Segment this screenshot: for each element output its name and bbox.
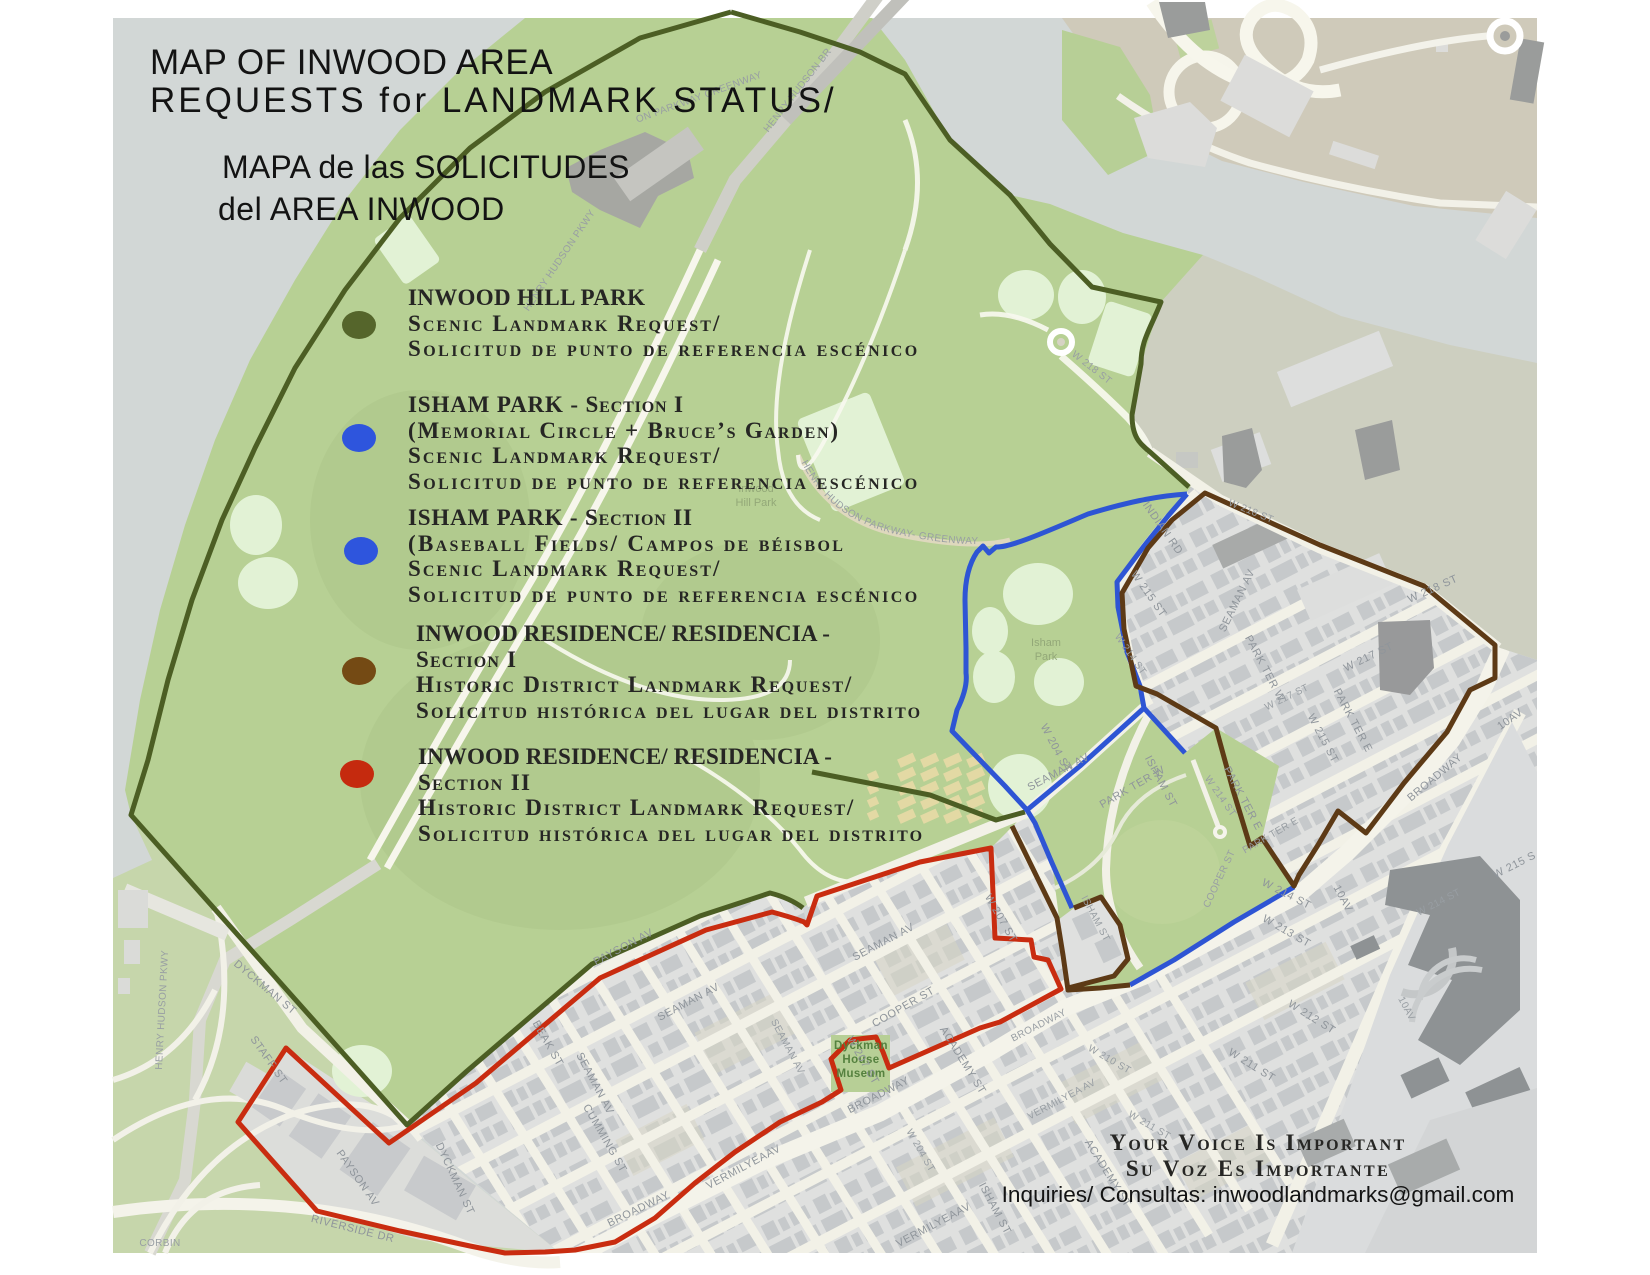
- svg-text:Scenic Landmark Request/: Scenic Landmark Request/: [408, 556, 721, 581]
- svg-text:MAPA de las SOLICITUDES: MAPA de las SOLICITUDES: [222, 149, 630, 185]
- svg-text:(Memorial Circle + Bruce’s Gar: (Memorial Circle + Bruce’s Garden): [408, 418, 840, 443]
- svg-text:Solicitud de punto de referenc: Solicitud de punto de referencia escénic…: [408, 469, 920, 494]
- svg-text:INWOOD RESIDENCE/ RESIDENCIA -: INWOOD RESIDENCE/ RESIDENCIA -: [416, 621, 830, 646]
- svg-text:Inquiries/ Consultas: inwoodl: Inquiries/ Consultas: inwoodlandmarks@gm…: [1002, 1182, 1515, 1207]
- svg-text:Solicitud de punto de referenc: Solicitud de punto de referencia escénic…: [408, 582, 920, 607]
- svg-text:Your Voice Is Important: Your Voice Is Important: [1110, 1130, 1407, 1155]
- svg-text:Solicitud histórica del lugar: Solicitud histórica del lugar del distri…: [418, 821, 924, 846]
- svg-text:CORBIN: CORBIN: [139, 1238, 180, 1249]
- svg-text:Historic District Landmark Req: Historic District Landmark Request/: [418, 795, 855, 820]
- svg-text:Section II: Section II: [418, 770, 531, 795]
- svg-text:Su Voz Es Importante: Su Voz Es Importante: [1126, 1156, 1390, 1181]
- svg-text:ISHAM PARK - Section I: ISHAM PARK - Section I: [408, 392, 684, 417]
- svg-text:Solicitud de punto de referenc: Solicitud de punto de referencia escénic…: [408, 336, 920, 361]
- svg-text:INWOOD HILL PARK: INWOOD HILL PARK: [408, 285, 645, 310]
- svg-text:del AREA INWOOD: del AREA INWOOD: [218, 191, 505, 227]
- svg-text:Historic District Landmark Req: Historic District Landmark Request/: [416, 672, 853, 697]
- svg-text:Park: Park: [1035, 651, 1058, 663]
- svg-text:Section I: Section I: [416, 647, 517, 672]
- svg-text:REQUESTS for LANDMARK STATUS/: REQUESTS for LANDMARK STATUS/: [150, 81, 837, 120]
- svg-text:Isham: Isham: [1031, 637, 1061, 649]
- svg-text:Scenic Landmark Request/: Scenic Landmark Request/: [408, 443, 721, 468]
- svg-text:ISHAM PARK - Section II: ISHAM PARK - Section II: [408, 505, 693, 530]
- svg-text:MAP OF INWOOD AREA: MAP OF INWOOD AREA: [150, 43, 553, 82]
- svg-text:Hill Park: Hill Park: [736, 497, 777, 509]
- svg-text:Solicitud histórica del lugar: Solicitud histórica del lugar del distri…: [416, 698, 922, 723]
- svg-text:INWOOD RESIDENCE/ RESIDENCIA -: INWOOD RESIDENCE/ RESIDENCIA -: [418, 744, 832, 769]
- svg-text:(Baseball Fields/ Campos de bé: (Baseball Fields/ Campos de béisbol: [408, 531, 845, 556]
- svg-text:Scenic Landmark Request/: Scenic Landmark Request/: [408, 311, 721, 336]
